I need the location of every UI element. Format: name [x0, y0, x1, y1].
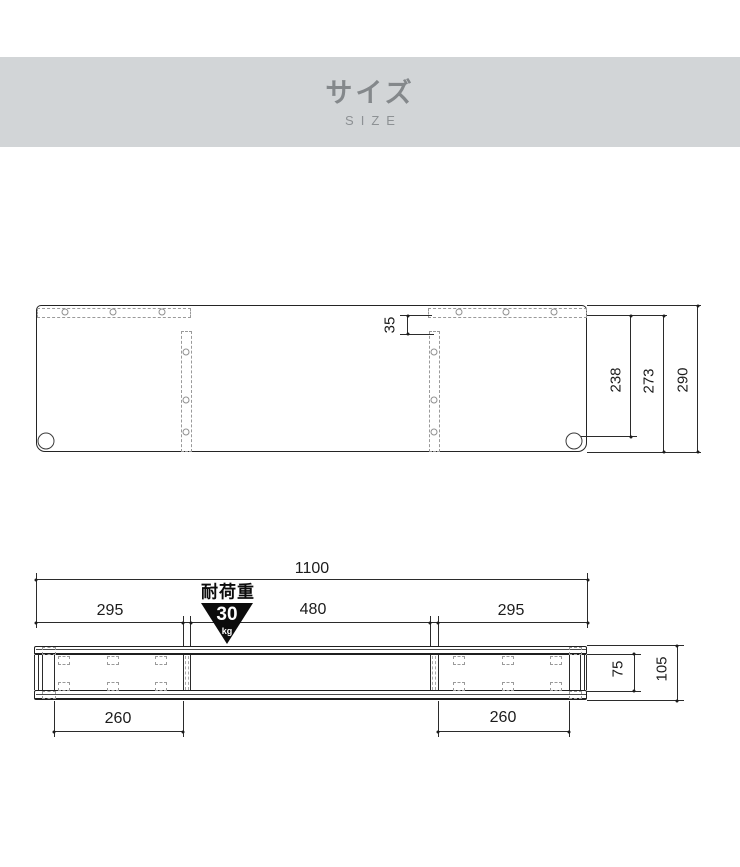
connector-mark	[502, 682, 514, 691]
connector-mark	[155, 656, 167, 665]
dim-ext-line	[587, 700, 684, 701]
screw-hole	[430, 428, 437, 435]
leg-connector-mark	[42, 691, 56, 699]
right-divider-line	[430, 655, 431, 690]
dim-end-dot	[676, 699, 679, 702]
dim-end-dot	[437, 621, 440, 624]
screw-hole	[503, 308, 510, 315]
dim-line	[438, 731, 570, 732]
dim-ext-line	[430, 616, 431, 646]
side-edge-line	[38, 655, 39, 690]
connector-mark	[502, 656, 514, 665]
top-view-board-outline	[36, 305, 587, 452]
dim-label-right-section: 295	[496, 602, 527, 620]
dim-ext-line	[190, 616, 191, 646]
dim-end-dot	[406, 314, 409, 317]
connector-mark	[107, 656, 119, 665]
dim-end-dot	[586, 578, 589, 581]
leg-connector-mark	[42, 647, 56, 655]
front-bottom-board	[34, 690, 587, 700]
dim-end-dot	[182, 730, 185, 733]
dim-ext-line	[587, 573, 588, 628]
dim-line	[697, 305, 698, 452]
connector-mark	[58, 656, 70, 665]
dim-end-dot	[429, 621, 432, 624]
left-divider-dashed	[188, 656, 189, 690]
side-edge-line	[34, 655, 35, 690]
board-edge-line	[36, 694, 587, 695]
left-leg-line	[54, 655, 55, 690]
dim-end-dot	[568, 730, 571, 733]
dim-line	[663, 315, 664, 452]
screw-hole	[159, 308, 166, 315]
dim-end-dot	[35, 578, 38, 581]
dim-end-dot	[633, 690, 636, 693]
dim-line	[54, 731, 184, 732]
left-divider-dashed	[185, 656, 186, 690]
connector-mark	[58, 682, 70, 691]
dim-ext-line	[587, 305, 701, 306]
dim-end-dot	[676, 644, 679, 647]
dim-line	[36, 622, 588, 623]
dim-label-right-leg-span: 260	[488, 709, 519, 727]
dim-ext-line	[587, 452, 701, 453]
dim-label-hole-inset: 35	[382, 316, 399, 333]
dim-label-left-section: 295	[95, 602, 126, 620]
dim-line	[630, 315, 631, 436]
dim-line	[677, 645, 678, 700]
left-divider-line	[183, 655, 184, 690]
dim-line	[634, 654, 635, 692]
dim-end-dot	[586, 621, 589, 624]
screw-hole	[456, 308, 463, 315]
board-edge-line	[36, 649, 587, 650]
size-diagram-page: サイズ SIZE 35 238 273 2	[0, 0, 740, 867]
dim-label-center-section: 480	[298, 601, 329, 619]
banner-title-jp: サイズ	[0, 71, 740, 110]
banner-title-en: SIZE	[0, 113, 740, 128]
dim-end-dot	[696, 304, 699, 307]
connector-mark	[550, 656, 562, 665]
load-capacity-label: 耐荷重	[201, 578, 255, 603]
dim-ext-line	[36, 573, 37, 628]
side-edge-line	[586, 655, 587, 690]
connector-mark	[107, 682, 119, 691]
dim-ext-line	[400, 315, 432, 316]
screw-hole	[182, 348, 189, 355]
dim-ext-line	[587, 315, 667, 316]
dim-end-dot	[189, 621, 192, 624]
dim-label-left-leg-span: 260	[103, 710, 134, 728]
left-divider-line	[190, 655, 191, 690]
right-leg-line	[569, 655, 570, 690]
dim-end-dot	[182, 621, 185, 624]
dim-label-273: 273	[641, 368, 658, 393]
dim-end-dot	[406, 333, 409, 336]
front-top-board	[34, 646, 587, 655]
connector-mark	[453, 656, 465, 665]
side-edge-line	[584, 655, 585, 690]
dim-end-dot	[662, 451, 665, 454]
right-divider-line	[438, 655, 439, 690]
load-capacity-value: 30	[216, 604, 237, 626]
dim-ext-line	[587, 645, 684, 646]
left-leg-line	[42, 655, 43, 690]
size-banner: サイズ SIZE	[0, 57, 740, 147]
dim-ext-line	[438, 616, 439, 646]
dim-line	[36, 579, 588, 580]
leg-connector-mark	[569, 647, 583, 655]
dim-label-290: 290	[675, 367, 692, 392]
dim-end-dot	[35, 621, 38, 624]
right-divider-dashed	[432, 656, 433, 690]
connector-mark	[155, 682, 167, 691]
cord-hole-right	[566, 432, 583, 449]
dim-end-dot	[633, 653, 636, 656]
screw-hole	[182, 428, 189, 435]
right-divider-dashed	[435, 656, 436, 690]
screw-hole	[110, 308, 117, 315]
dim-label-238: 238	[608, 367, 625, 392]
dim-end-dot	[53, 730, 56, 733]
dim-end-dot	[629, 314, 632, 317]
dim-ext-line	[183, 616, 184, 646]
dim-line	[407, 315, 408, 334]
dim-label-total-width: 1100	[293, 560, 331, 578]
dim-label-total-height: 105	[653, 656, 670, 681]
load-capacity-unit: kg	[222, 626, 233, 636]
dim-end-dot	[696, 451, 699, 454]
screw-hole	[551, 308, 558, 315]
right-leg-line	[580, 655, 581, 690]
dim-end-dot	[437, 730, 440, 733]
leg-connector-mark	[569, 691, 583, 699]
connector-mark	[453, 682, 465, 691]
screw-hole	[62, 308, 69, 315]
screw-hole	[182, 397, 189, 404]
dim-end-dot	[629, 435, 632, 438]
screw-hole	[430, 397, 437, 404]
dim-end-dot	[662, 314, 665, 317]
cord-hole-left	[37, 433, 54, 450]
screw-hole	[430, 348, 437, 355]
dim-label-opening-height: 75	[609, 661, 626, 678]
connector-mark	[550, 682, 562, 691]
